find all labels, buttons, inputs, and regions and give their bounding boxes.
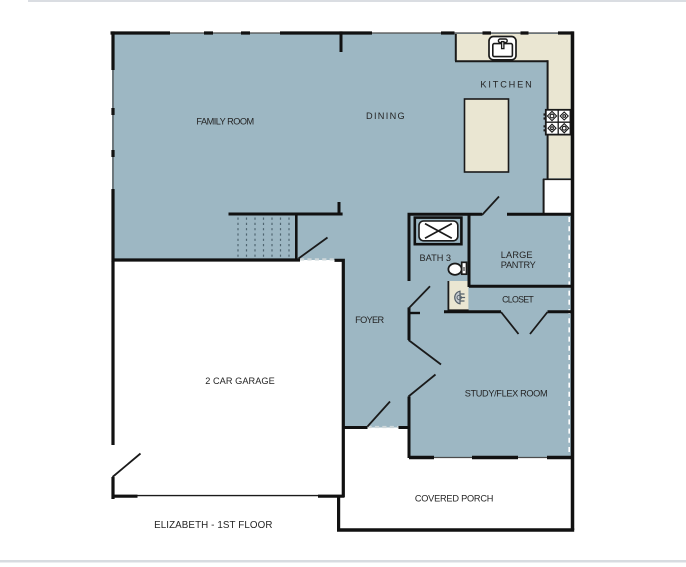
- svg-text:COVERED PORCH: COVERED PORCH: [415, 494, 493, 504]
- svg-text:PANTRY: PANTRY: [501, 260, 536, 270]
- svg-text:KITCHEN: KITCHEN: [480, 79, 533, 89]
- svg-text:LARGE: LARGE: [501, 250, 533, 260]
- svg-text:STUDY/FLEX ROOM: STUDY/FLEX ROOM: [465, 388, 548, 398]
- svg-text:DINING: DINING: [366, 111, 406, 121]
- svg-text:FAMILY ROOM: FAMILY ROOM: [196, 117, 253, 127]
- svg-text:BATH 3: BATH 3: [420, 253, 451, 263]
- svg-text:2 CAR GARAGE: 2 CAR GARAGE: [205, 376, 275, 386]
- svg-text:ELIZABETH - 1ST FLOOR: ELIZABETH - 1ST FLOOR: [154, 520, 272, 531]
- svg-text:FOYER: FOYER: [355, 315, 384, 325]
- svg-text:CLOSET: CLOSET: [502, 295, 534, 305]
